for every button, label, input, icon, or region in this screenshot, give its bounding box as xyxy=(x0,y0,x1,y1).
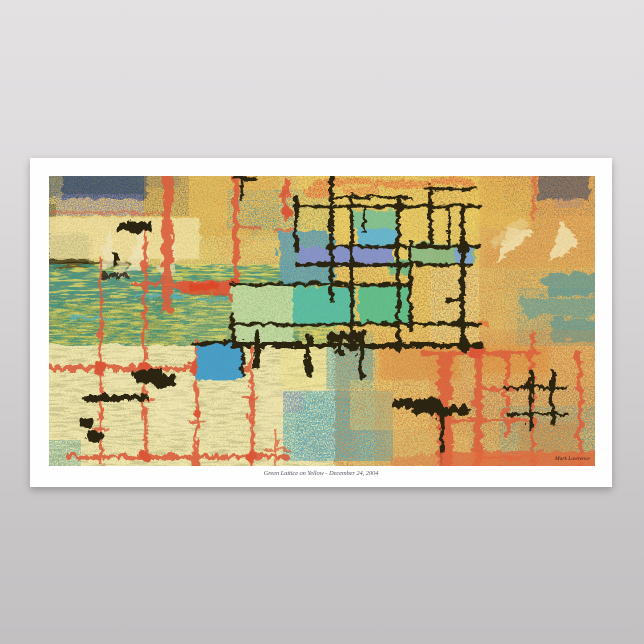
svg-text:Mark Lawrence: Mark Lawrence xyxy=(554,456,590,462)
